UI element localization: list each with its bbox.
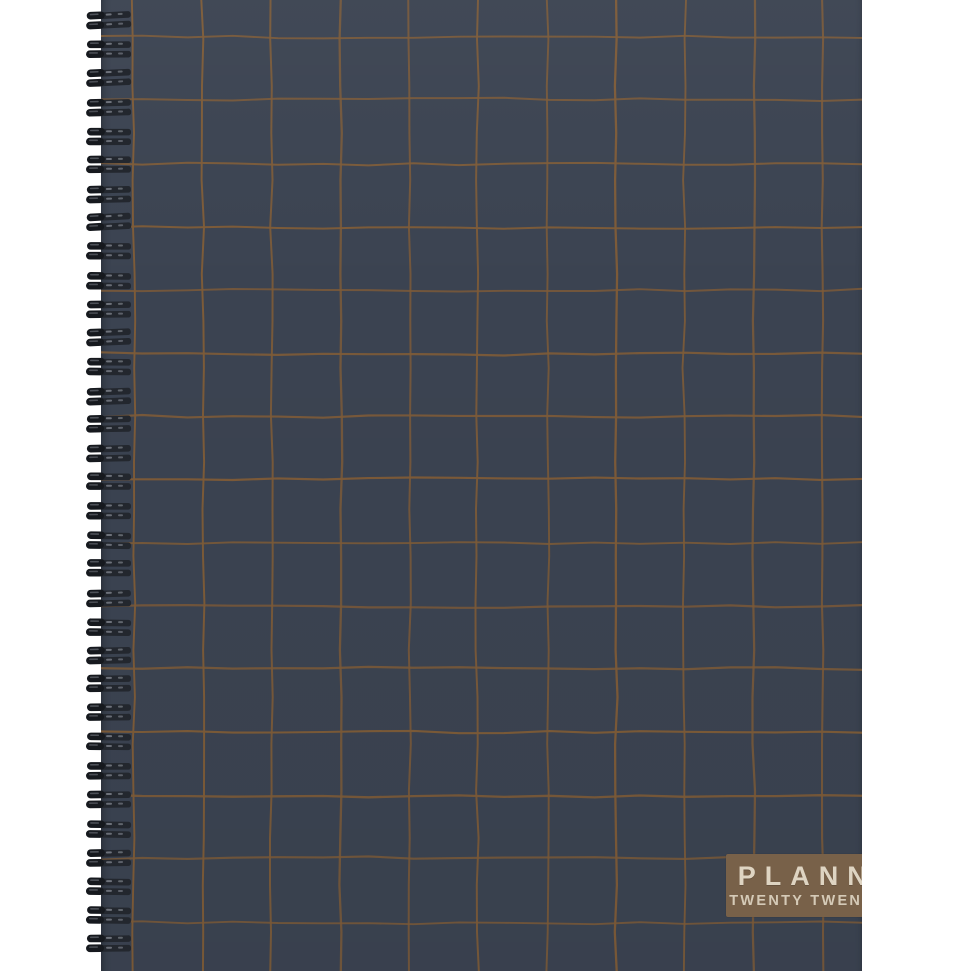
planner-notebook-cover: PLANNER TWENTY TWENTY-FIVE [101, 0, 862, 971]
planner-year-text: TWENTY TWENTY-FIVE [729, 894, 862, 909]
product-photo: PLANNER TWENTY TWENTY-FIVE [0, 0, 970, 971]
planner-title-text: PLANNER [738, 862, 862, 890]
grid-pattern [101, 0, 862, 971]
cover-title-plate: PLANNER TWENTY TWENTY-FIVE [726, 854, 862, 917]
